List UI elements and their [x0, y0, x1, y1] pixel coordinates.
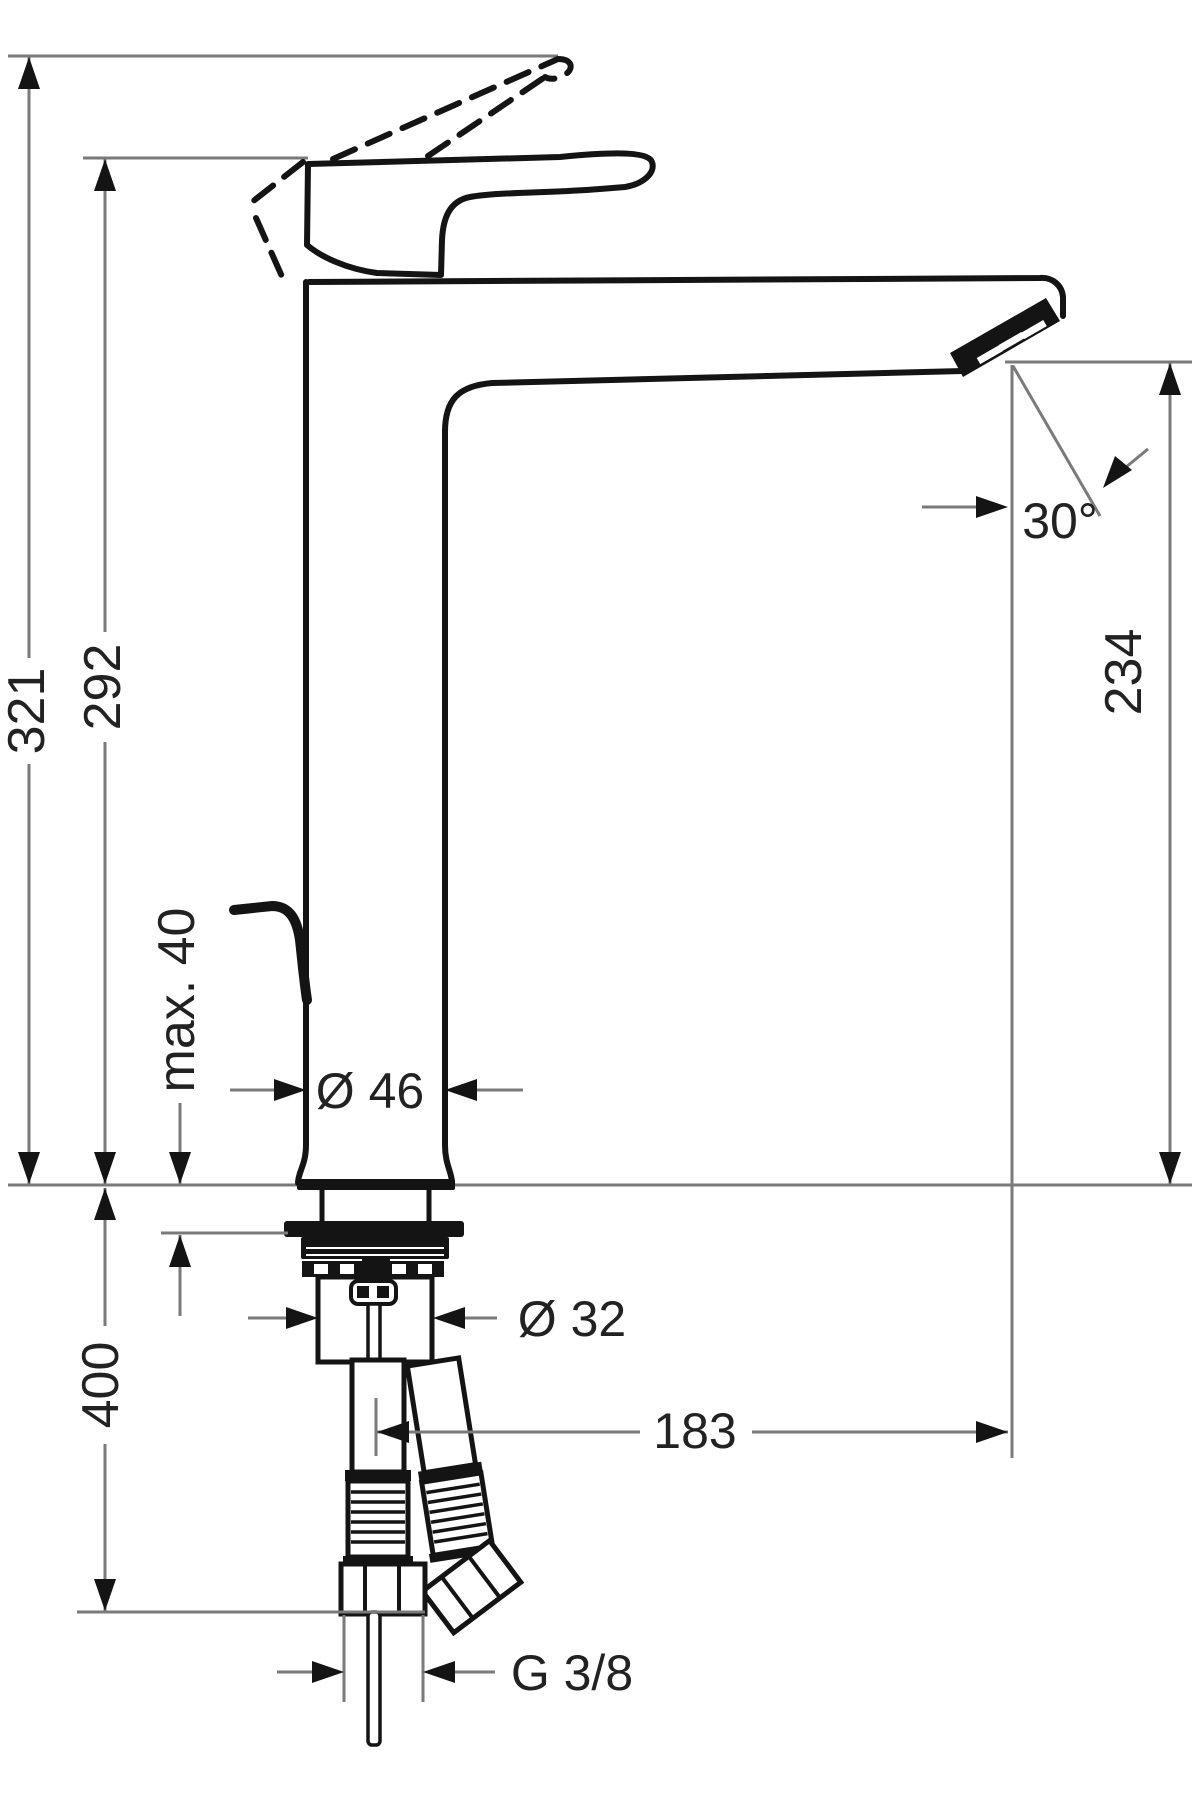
- shank-fitting: [362, 1256, 390, 1282]
- faucet-dimension-drawing: 321 292 max. 40 400 234 Ø 46 Ø 32 183 30…: [0, 0, 1200, 1800]
- arrow-400-top: [94, 1188, 116, 1220]
- arrow-183-right: [976, 1421, 1008, 1443]
- dim-234-label: 234: [1095, 629, 1153, 716]
- faucet-outline: [234, 59, 1063, 1745]
- body-right-edge: [445, 430, 452, 1183]
- hose-port: [377, 1286, 389, 1298]
- arrow-321-bottom: [18, 1152, 40, 1184]
- pull-rod-lower: [368, 1612, 380, 1745]
- escutcheon-plate: [284, 1221, 464, 1237]
- locknut-slot: [340, 1264, 354, 1274]
- arrow-292-bottom: [94, 1152, 116, 1184]
- dim-30deg-label: 30°: [1022, 493, 1098, 549]
- locknut-slot: [392, 1264, 406, 1274]
- phantom-lever-arc: [256, 218, 284, 281]
- faucet-body-fill: [298, 278, 1063, 1183]
- popup-rod-lever: [234, 906, 307, 1000]
- spout-underside-edge: [445, 371, 963, 432]
- arrow-dia32-left: [286, 1307, 318, 1329]
- arrow-30-right: [1103, 456, 1132, 488]
- base-flange: [297, 1179, 455, 1190]
- arrow-dia46-left: [274, 1079, 306, 1101]
- hose-tube: [407, 1358, 475, 1473]
- dim-dia32-label: Ø 32: [518, 1291, 626, 1347]
- drawing-svg: 321 292 max. 40 400 234 Ø 46 Ø 32 183 30…: [0, 0, 1200, 1800]
- arrow-dia46-right: [445, 1079, 477, 1101]
- hose-port: [357, 1286, 369, 1298]
- dim-321-label: 321: [0, 668, 56, 755]
- dimension-labels: 321 292 max. 40 400 234 Ø 46 Ø 32 183 30…: [0, 493, 1153, 1701]
- dim-g38-label: G 3/8: [511, 1645, 633, 1701]
- body-left-edge: [298, 282, 306, 1183]
- arrow-g38-left: [312, 1661, 344, 1683]
- arrow-321-top: [18, 57, 40, 89]
- dim-dia46-label: Ø 46: [316, 1063, 424, 1119]
- pull-rod-upper: [368, 1304, 380, 1362]
- arrow-max40-bottom: [169, 1235, 191, 1267]
- phantom-lever-front: [247, 162, 303, 206]
- arrow-dia32-right: [433, 1307, 465, 1329]
- arrow-g38-right: [423, 1661, 455, 1683]
- arrow-234-bottom: [1159, 1152, 1181, 1184]
- dim-max40-label: max. 40: [148, 908, 206, 1093]
- hose-tube: [352, 1360, 404, 1472]
- arrow-292-top: [94, 159, 116, 191]
- dim-183-label: 183: [653, 1403, 736, 1459]
- hose-nut-left: [341, 1564, 425, 1614]
- arrow-400-bottom: [94, 1579, 116, 1611]
- dim-292-label: 292: [74, 644, 132, 731]
- dim-400-label: 400: [72, 1342, 130, 1429]
- locknut-slot: [418, 1264, 432, 1274]
- locknut-slot: [314, 1264, 328, 1274]
- arrow-max40-top: [169, 1152, 191, 1184]
- lever-handle: [307, 153, 653, 275]
- arrow-30-left: [976, 496, 1008, 518]
- arrow-234-top: [1159, 363, 1181, 395]
